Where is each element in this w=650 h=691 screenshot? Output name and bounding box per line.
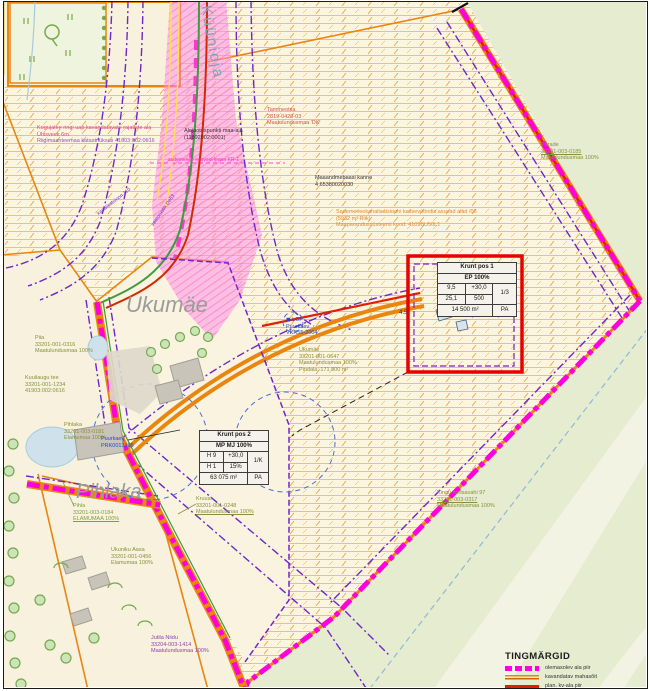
krunt1-c22: 500 xyxy=(466,295,494,306)
label-ukumae-info-line-2: Maatulundusmaa 100% xyxy=(299,360,357,367)
krunt1-sub: EP 100% xyxy=(438,274,516,285)
legend: TINGMÄRGID olemasolev ala piirkavandatav… xyxy=(505,651,650,691)
label-kingu-line-2: Maatulundusmaa 100% xyxy=(437,503,495,510)
krunt2-sub: MP MJ 100% xyxy=(200,442,268,453)
krunt1-c11: 9,5 xyxy=(438,284,466,295)
label-kruusi-info: Kruusi33201-001-0248Maatulundusmaa 100% xyxy=(196,496,254,516)
label-pihlaka-info-line-0: Pihlaka xyxy=(64,422,106,429)
parcel-green xyxy=(10,3,106,83)
label-kuuliaugu: Kuuliaugu tee33201-001-123441903:002:061… xyxy=(25,375,65,395)
label-alajaotus: Alajaotuspunkti maa-ala(11892002:0001) xyxy=(184,128,243,141)
label-ukumae-title-line-0: Ukumäe xyxy=(126,292,208,319)
label-tammeotsa: Tammeotsa2819-0420-03Maatulundusmaa 'DK' xyxy=(267,107,320,127)
label-ukuniku-aasa-line-2: Elamumaa 100% xyxy=(111,560,153,567)
krunt1-tag: PA xyxy=(493,305,516,316)
label-maaandmebaas: Maaandmebaasi kanne4 65380020030 xyxy=(315,175,372,188)
label-sademevee-line-2: Maaparandussüsteemi kood: 4109BU50L1 xyxy=(336,222,477,229)
label-kuuliaugu-line-0: Kuuliaugu tee xyxy=(25,375,65,382)
topleft-parcels xyxy=(8,2,180,86)
label-pihla-info: Pihla33201-003-0184ELAMUMAA 100% xyxy=(73,503,119,523)
krunt1-area: 14 500 m² xyxy=(438,305,493,316)
krunt2-c13: 1/K xyxy=(248,452,268,473)
legend-swatch-orange-line xyxy=(505,675,539,680)
krunt1-title: Krunt pos 1 xyxy=(438,263,516,274)
label-parade: Pärade33201-003-0185Maatulundusmaa 100% xyxy=(541,142,599,162)
krunt2-area: 63 075 m² xyxy=(200,473,248,484)
label-tammeotsa-line-2: Maatulundusmaa 'DK' xyxy=(267,120,320,127)
label-tammeotsa-line-0: Tammeotsa xyxy=(267,107,320,114)
label-sademevee: Sademeveekanalisatsiooni kaitsevööndis a… xyxy=(336,209,477,229)
label-piia: Piia33201-001-0316Maatulundusmaa 100% xyxy=(35,335,93,355)
label-lop: ◼ LOPPuurkaevVKR55-2004 xyxy=(286,317,318,337)
krunt2-title: Krunt pos 2 xyxy=(200,431,268,442)
krunt1-c21: 25,1 xyxy=(438,295,466,306)
label-ukumae-title: Ukumäe xyxy=(126,292,208,319)
label-piia-line-1: 33201-001-0316 xyxy=(35,342,93,349)
legend-swatch-red-line xyxy=(505,685,539,688)
label-dim-45: 4.5 xyxy=(399,310,407,317)
legend-row-2: plan. kv-ala piir xyxy=(505,683,650,689)
label-ukuniku-aasa-line-1: 33201-001-0456 xyxy=(111,554,153,561)
label-roadnote-line-1: Ühisveek 6m xyxy=(37,132,155,139)
krunt1-c13: 1/3 xyxy=(493,284,516,305)
legend-label-0: olemasolev ala piir xyxy=(545,665,591,671)
krunt-pos-2-table: Krunt pos 2 MP MJ 100% H 9 +30,0 1/K H 1… xyxy=(199,430,269,485)
label-kraav-note-line-0: sademevee eesvool kraav KR-1 xyxy=(168,157,239,163)
label-roadnote: Kogujatee ringi uap kavandatavate rajati… xyxy=(37,125,155,145)
krunt2-c12: +30,0 xyxy=(224,452,248,463)
label-tammeotsa-line-1: 2819-0420-03 xyxy=(267,114,320,121)
label-piia-line-0: Piia xyxy=(35,335,93,342)
label-kuuliaugu-line-2: 41903:002:0616 xyxy=(25,388,65,395)
legend-items: olemasolev ala piirkavandatav mahasõitpl… xyxy=(505,665,650,691)
label-lop-line-1: Puurkaev xyxy=(286,324,318,331)
label-kruusi-info-line-1: 33201-001-0248 xyxy=(196,503,254,510)
label-roadnote-line-0: Kogujatee ringi uap kavandatavate rajati… xyxy=(37,125,155,132)
legend-label-2: plan. kv-ala piir xyxy=(545,683,582,689)
label-ukuniku-aasa: Ukuniku Aasa33201-001-0456Elamumaa 100% xyxy=(111,547,153,567)
label-pihlaka-info-line-2: Elamumaa 100% xyxy=(64,435,106,442)
label-piia-line-2: Maatulundusmaa 100% xyxy=(35,348,93,355)
label-parade-line-1: 33201-003-0185 xyxy=(541,149,599,156)
legend-title: TINGMÄRGID xyxy=(505,651,650,662)
label-ukumae-info-line-0: Ukumäe xyxy=(299,347,357,354)
label-alajaotus-line-1: (11892002:0001) xyxy=(184,135,243,142)
label-pihlaka-title: Pihlaka xyxy=(76,480,142,504)
map-document[interactable]: KüüniojaKogujatee ringi uap kavandatavat… xyxy=(0,0,650,691)
label-ukuniku-aasa-line-0: Ukuniku Aasa xyxy=(111,547,153,554)
label-kingu-line-1: 33201-003-0317 xyxy=(437,497,495,504)
label-parade-line-2: Maatulundusmaa 100% xyxy=(541,155,599,162)
label-sademevee-line-1: (5932 m² Riik) xyxy=(336,216,477,223)
label-dim-45-line-0: 4.5 xyxy=(399,310,407,317)
legend-label-1: kavandatav mahasõit xyxy=(545,674,597,680)
label-pihla-info-line-1: 33201-003-0184 xyxy=(73,510,119,517)
krunt2-c22: 15% xyxy=(224,463,248,474)
label-puurkaev2: PuurkaevPRK0013195 xyxy=(101,436,134,449)
label-kraav-note: sademevee eesvool kraav KR-1 xyxy=(168,157,239,163)
label-jutila-line-0: Jutila Niidu xyxy=(151,635,209,642)
label-puurkaev2-line-0: Puurkaev xyxy=(101,436,134,443)
label-parade-line-0: Pärade xyxy=(541,142,599,149)
label-ukumae-info: Ukumäe33201-001-0647Maatulundusmaa 100%P… xyxy=(299,347,357,374)
label-ukumae-info-line-3: Pindala: 171 800 m² xyxy=(299,367,357,374)
label-sademevee-line-0: Sademeveekanalisatsiooni kaitsevööndis a… xyxy=(336,209,477,216)
label-jutila: Jutila Niidu33204-003-1414Maatulundusmaa… xyxy=(151,635,209,655)
label-maaandmebaas-line-0: Maaandmebaasi kanne xyxy=(315,175,372,182)
label-lop-line-0: ◼ LOP xyxy=(286,317,318,324)
label-puurkaev2-line-1: PRK0013195 xyxy=(101,443,134,450)
label-lop-line-2: VKR55-2004 xyxy=(286,330,318,337)
label-jutila-line-2: Maatulundusmaa 100% xyxy=(151,648,209,655)
legend-swatch-magenta-dash xyxy=(505,666,539,671)
label-maaandmebaas-line-1: 4 65380020030 xyxy=(315,182,372,189)
krunt-pos-1-table: Krunt pos 1 EP 100% 9,5 +30,0 1/3 25,1 5… xyxy=(437,262,517,317)
legend-row-0: olemasolev ala piir xyxy=(505,665,650,671)
label-pihla-info-line-0: Pihla xyxy=(73,503,119,510)
label-jutila-line-1: 33204-003-1414 xyxy=(151,642,209,649)
krunt1-c12: +30,0 xyxy=(466,284,494,295)
krunt2-tag: PA xyxy=(248,473,268,484)
krunt2-c11: H 9 xyxy=(200,452,224,463)
label-kingu: Kingu metsavahi 9733201-003-0317Maatulun… xyxy=(437,490,495,510)
label-pihlaka-info-line-1: 33201-003-0181 xyxy=(64,429,106,436)
krunt2-c21: H 1 xyxy=(200,463,224,474)
map-canvas[interactable] xyxy=(0,0,650,691)
label-pihlaka-title-line-0: Pihlaka xyxy=(76,480,142,504)
label-alajaotus-line-0: Alajaotuspunkti maa-ala xyxy=(184,128,243,135)
label-pihla-info-line-2: ELAMUMAA 100% xyxy=(73,516,119,523)
label-ukumae-info-line-1: 33201-001-0647 xyxy=(299,354,357,361)
label-roadnote-line-2: Riigimaanteemaa katastriüksus 41903:002:… xyxy=(37,138,155,145)
label-kuuliaugu-line-1: 33201-001-1234 xyxy=(25,382,65,389)
label-kruusi-info-line-0: Kruusi xyxy=(196,496,254,503)
label-pihlaka-info: Pihlaka33201-003-0181Elamumaa 100% xyxy=(64,422,106,442)
label-kingu-line-0: Kingu metsavahi 97 xyxy=(437,490,495,497)
legend-row-1: kavandatav mahasõit xyxy=(505,674,650,680)
label-kruusi-info-line-2: Maatulundusmaa 100% xyxy=(196,509,254,516)
existing-building-2 xyxy=(456,320,468,331)
